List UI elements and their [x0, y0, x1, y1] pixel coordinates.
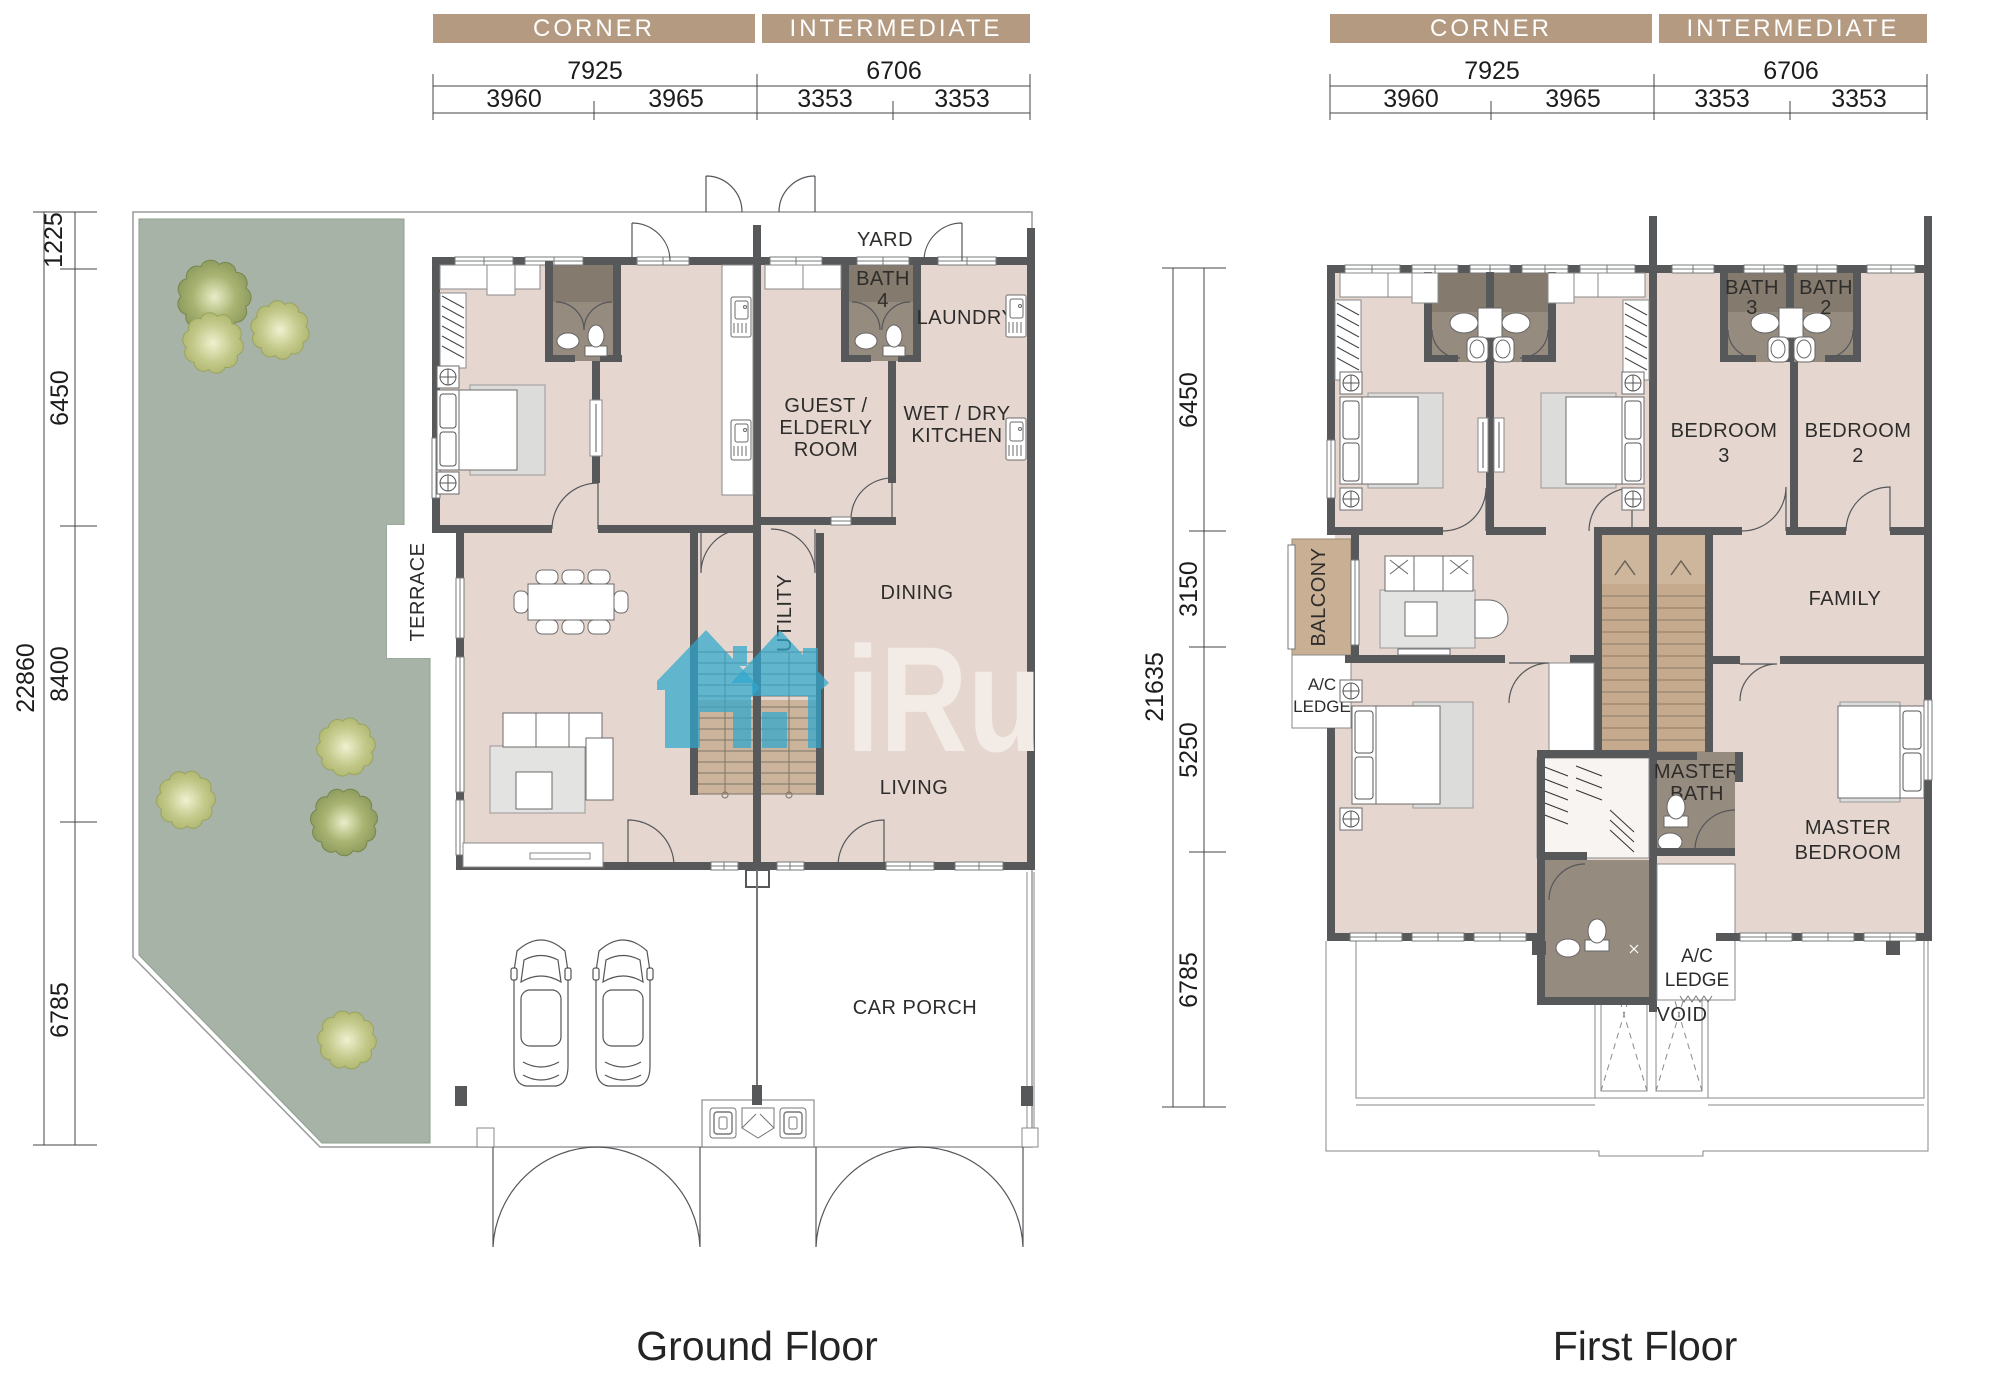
svg-text:3353: 3353 [1694, 85, 1750, 113]
svg-text:CAR PORCH: CAR PORCH [853, 997, 978, 1019]
svg-text:3353: 3353 [797, 85, 853, 113]
svg-text:A/C: A/C [1681, 946, 1713, 967]
svg-text:3: 3 [1746, 297, 1758, 319]
svg-text:6450: 6450 [46, 370, 74, 426]
svg-text:3960: 3960 [1383, 85, 1439, 113]
svg-text:iRu: iRu [846, 615, 1042, 783]
svg-text:ELDERLY: ELDERLY [779, 417, 872, 439]
svg-text:22860: 22860 [12, 643, 40, 713]
svg-text:GUEST /: GUEST / [784, 395, 867, 417]
svg-text:CORNER: CORNER [533, 15, 655, 42]
svg-text:BATH: BATH [1725, 277, 1779, 299]
svg-text:3353: 3353 [934, 85, 990, 113]
svg-text:CORNER: CORNER [1430, 15, 1552, 42]
svg-text:First Floor: First Floor [1553, 1323, 1738, 1369]
svg-text:BATH: BATH [856, 268, 910, 290]
svg-text:2: 2 [1820, 297, 1832, 319]
svg-text:6785: 6785 [1175, 952, 1203, 1008]
svg-text:6450: 6450 [1175, 372, 1203, 428]
svg-text:ROOM: ROOM [794, 439, 858, 461]
svg-text:3960: 3960 [486, 85, 542, 113]
svg-text:INTERMEDIATE: INTERMEDIATE [790, 15, 1003, 42]
svg-text:7925: 7925 [1464, 57, 1520, 85]
svg-text:BALCONY: BALCONY [1308, 547, 1330, 646]
svg-text:MASTER: MASTER [1654, 761, 1740, 783]
svg-text:2: 2 [1852, 445, 1864, 467]
svg-text:1225: 1225 [40, 212, 68, 268]
svg-text:LEDGE: LEDGE [1665, 970, 1729, 991]
svg-text:MASTER: MASTER [1805, 817, 1891, 839]
svg-text:8400: 8400 [46, 646, 74, 702]
svg-text:KITCHEN: KITCHEN [911, 425, 1002, 447]
svg-text:A/C: A/C [1308, 675, 1336, 694]
svg-text:3965: 3965 [648, 85, 704, 113]
svg-text:6706: 6706 [866, 57, 922, 85]
svg-text:7925: 7925 [567, 57, 623, 85]
svg-text:3150: 3150 [1175, 561, 1203, 617]
svg-text:3965: 3965 [1545, 85, 1601, 113]
svg-text:BEDROOM: BEDROOM [1671, 420, 1778, 442]
svg-text:LAUNDRY: LAUNDRY [917, 307, 1016, 329]
svg-text:5250: 5250 [1175, 722, 1203, 778]
svg-text:3353: 3353 [1831, 85, 1887, 113]
svg-text:6706: 6706 [1763, 57, 1819, 85]
svg-text:BEDROOM: BEDROOM [1805, 420, 1912, 442]
svg-text:WET / DRY: WET / DRY [903, 403, 1010, 425]
svg-text:BEDROOM: BEDROOM [1795, 842, 1902, 864]
svg-text:VOID: VOID [1657, 1004, 1708, 1026]
svg-text:YARD: YARD [857, 229, 913, 251]
svg-text:TERRACE: TERRACE [407, 542, 429, 641]
svg-text:4: 4 [877, 290, 889, 312]
svg-text:21635: 21635 [1141, 652, 1169, 722]
svg-text:6785: 6785 [46, 982, 74, 1038]
svg-text:INTERMEDIATE: INTERMEDIATE [1687, 15, 1900, 42]
svg-text:DINING: DINING [881, 582, 954, 604]
svg-text:BATH: BATH [1799, 277, 1853, 299]
svg-text:FAMILY: FAMILY [1809, 588, 1882, 610]
svg-text:3: 3 [1718, 445, 1730, 467]
svg-text:Ground Floor: Ground Floor [636, 1323, 878, 1369]
